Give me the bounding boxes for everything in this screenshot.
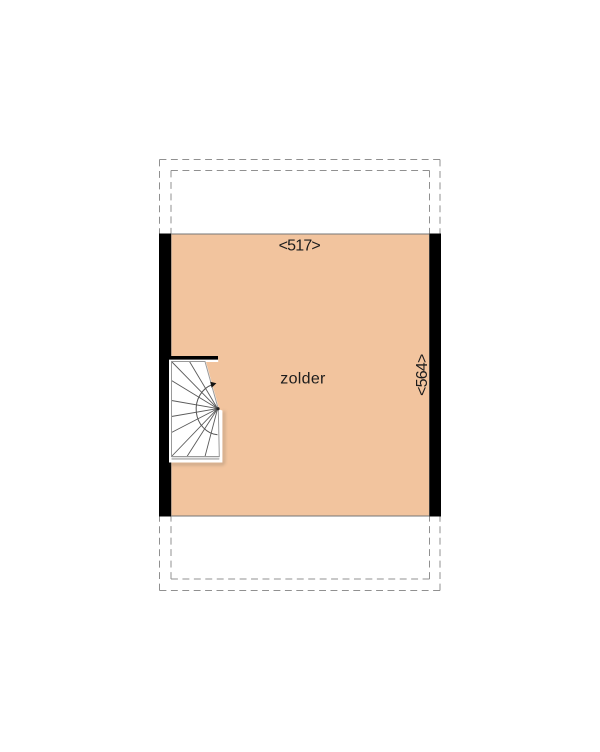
svg-text:zolder: zolder	[280, 370, 326, 387]
svg-text:<564>: <564>	[414, 354, 431, 396]
svg-text:<517>: <517>	[279, 238, 321, 255]
